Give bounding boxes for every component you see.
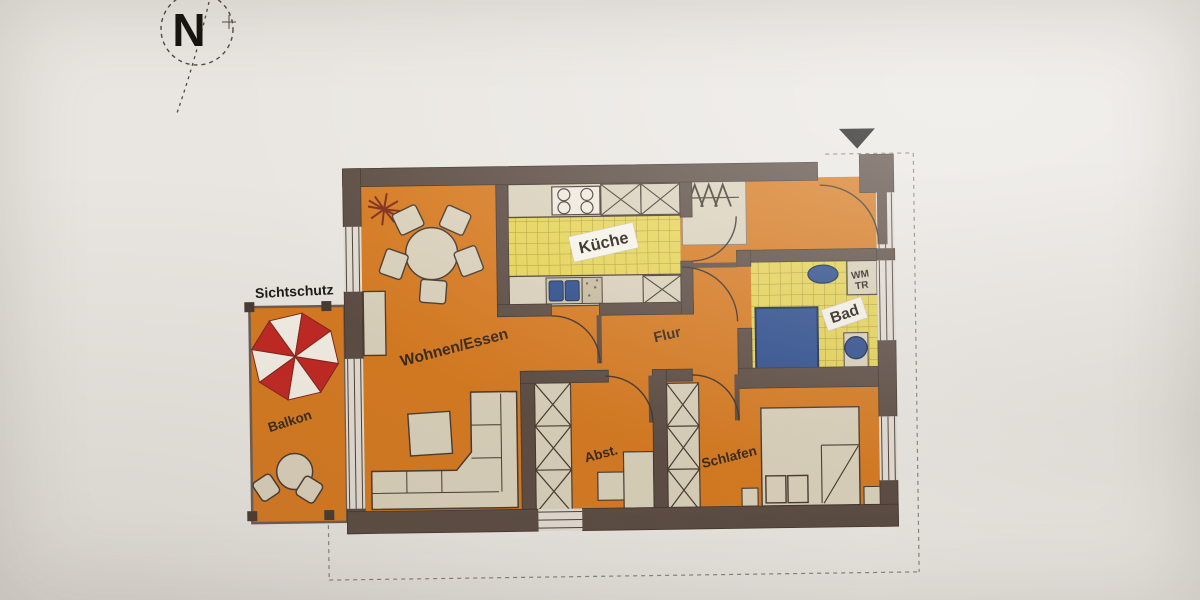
bathroom-sink-icon (808, 265, 838, 283)
stool (598, 472, 626, 500)
window-bedroom (879, 416, 898, 480)
stove-icon (552, 186, 600, 215)
double-bed (761, 407, 860, 506)
nightstand (864, 486, 881, 504)
wardrobe-schlafen (666, 383, 700, 511)
window-bathroom (877, 260, 896, 340)
shower-icon (755, 307, 818, 372)
pillow (788, 475, 808, 502)
dining-chair (419, 279, 447, 304)
window-bottom (538, 509, 582, 532)
kitchen-speckle-cabinet (582, 277, 602, 303)
north-compass-icon: N (161, 0, 236, 113)
window-living-top (343, 227, 362, 292)
entrance-triangle-marker (839, 128, 875, 149)
nightstand (742, 488, 758, 506)
sideboard (363, 291, 386, 355)
scanned-floor-plan-page: N (0, 0, 1200, 600)
window-balcony-door (345, 359, 365, 509)
coffee-table (408, 411, 453, 456)
pillow (766, 476, 786, 503)
wardrobe-abst (534, 383, 572, 513)
bedroom-door-leaf (734, 374, 740, 420)
storage-door-leaf (648, 376, 654, 423)
dining-table (405, 227, 458, 280)
label-tr: TR (854, 279, 870, 292)
toilet-icon (844, 333, 869, 371)
kitchen-sink-icon (546, 278, 582, 305)
label-sichtschutz: Sichtschutz (255, 281, 334, 301)
compass-label: N (172, 4, 205, 56)
shelf (623, 452, 654, 514)
floor-plan-svg: N (0, 0, 1200, 600)
compass-tick (222, 15, 236, 29)
